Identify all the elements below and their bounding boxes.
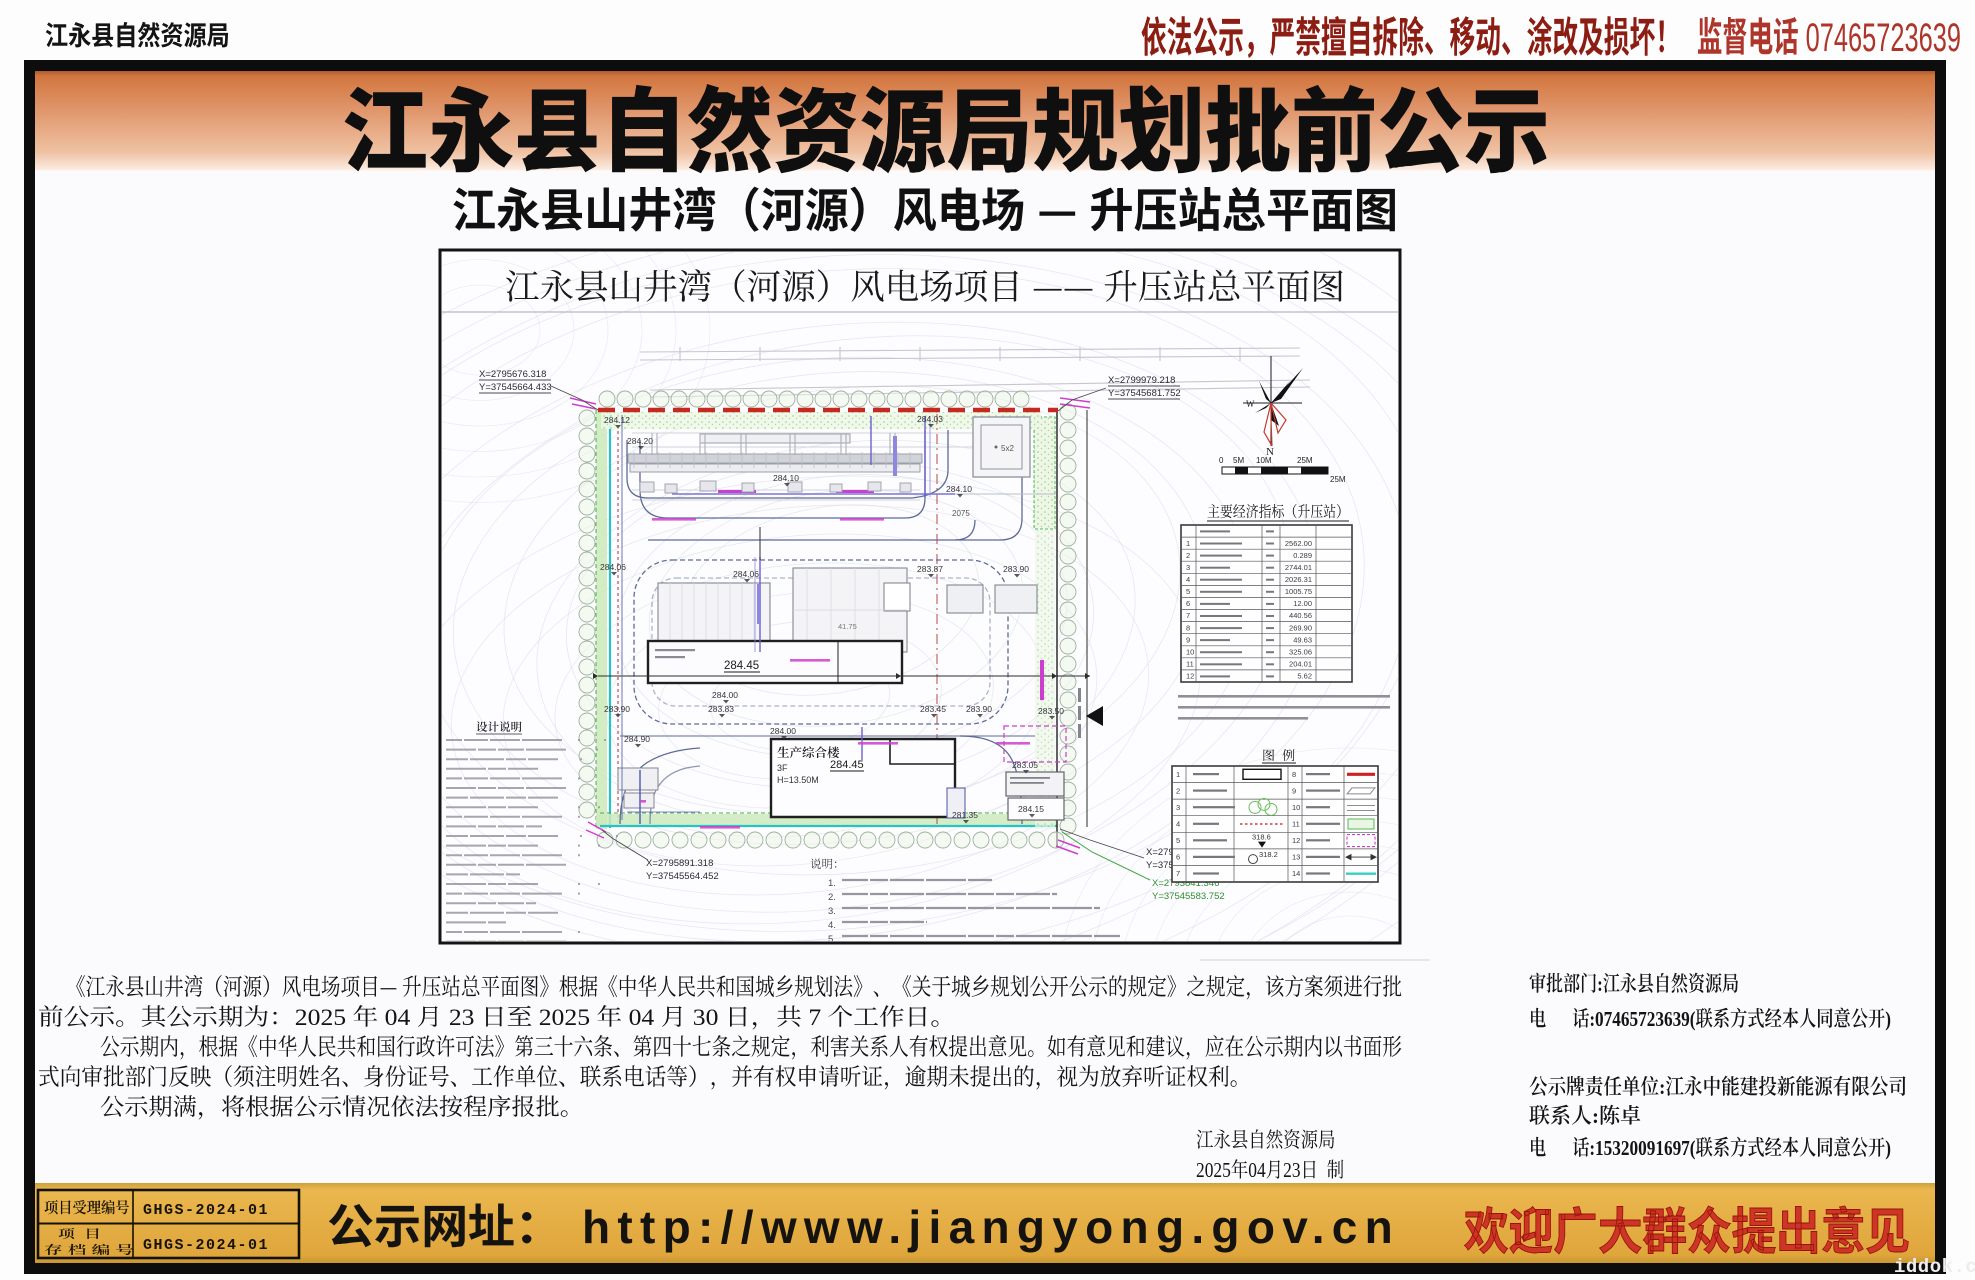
svg-text:Y=37545681.752: Y=37545681.752 — [1108, 388, 1181, 399]
svg-text:4.: 4. — [828, 920, 836, 931]
svg-text:25M: 25M — [1330, 475, 1346, 484]
svg-text::07465723639(: :07465723639( — [1589, 1008, 1695, 1031]
svg-text:Y=37545583.752: Y=37545583.752 — [1152, 891, 1225, 902]
svg-text:25M: 25M — [1297, 456, 1313, 465]
svg-text:2025: 2025 — [1196, 1160, 1231, 1183]
svg-text:3.: 3. — [828, 906, 836, 917]
svg-text:iddok.c: iddok.c — [1894, 1256, 1975, 1278]
svg-text:X=2799979.218: X=2799979.218 — [1108, 375, 1175, 386]
svg-text:2025: 2025 — [532, 1005, 596, 1031]
svg-text:12: 12 — [1292, 836, 1300, 845]
svg-text:1.: 1. — [828, 878, 836, 889]
svg-text:284.00: 284.00 — [712, 690, 738, 700]
svg-text:2744.01: 2744.01 — [1285, 563, 1312, 572]
svg-text:9: 9 — [1186, 635, 1190, 644]
svg-text:): ) — [1885, 1137, 1891, 1160]
svg-text:283.90: 283.90 — [1003, 564, 1029, 574]
svg-text:283.90: 283.90 — [966, 704, 992, 714]
svg-text:12: 12 — [1186, 672, 1194, 681]
svg-text:2.: 2. — [828, 892, 836, 903]
svg-text:283.05: 283.05 — [1012, 760, 1038, 770]
svg-text:7: 7 — [1176, 869, 1180, 878]
svg-text:8: 8 — [1186, 623, 1190, 632]
svg-text:2075: 2075 — [952, 509, 970, 518]
svg-text:440.56: 440.56 — [1289, 611, 1312, 620]
svg-text:7: 7 — [802, 1005, 828, 1031]
svg-text:281.35: 281.35 — [952, 810, 978, 820]
svg-text:4: 4 — [1176, 820, 1180, 829]
svg-text:04: 04 — [1248, 1160, 1266, 1183]
svg-text:http://www.jiangyong.gov.cn: http://www.jiangyong.gov.cn — [582, 1201, 1400, 1253]
svg-text:10: 10 — [1186, 648, 1194, 657]
svg-text:283.45: 283.45 — [920, 704, 946, 714]
svg-text:1005.75: 1005.75 — [1285, 587, 1312, 596]
svg-text:284.00: 284.00 — [770, 726, 796, 736]
svg-text::: : — [1597, 973, 1603, 996]
svg-text:284.06: 284.06 — [733, 569, 759, 579]
svg-text:8: 8 — [1292, 770, 1296, 779]
svg-text:284.45: 284.45 — [724, 660, 759, 672]
svg-text:H=13.50M: H=13.50M — [777, 775, 819, 785]
svg-text:5M: 5M — [1233, 456, 1244, 465]
svg-text:6: 6 — [1186, 599, 1190, 608]
svg-text:3F: 3F — [777, 763, 788, 773]
svg-text:284.15: 284.15 — [1018, 804, 1044, 814]
svg-text:X=2795676.318: X=2795676.318 — [479, 369, 546, 380]
svg-text:1: 1 — [1186, 539, 1190, 548]
svg-text:12.00: 12.00 — [1293, 599, 1312, 608]
svg-text::15320091697(: :15320091697( — [1589, 1137, 1695, 1160]
svg-text:04: 04 — [378, 1005, 417, 1031]
svg-text:5: 5 — [1186, 587, 1190, 596]
svg-text:284.10: 284.10 — [773, 473, 799, 483]
svg-text:0: 0 — [1219, 456, 1224, 465]
svg-text:318.2: 318.2 — [1259, 850, 1278, 859]
svg-text:Y=37545564.452: Y=37545564.452 — [646, 871, 719, 882]
svg-text:10M: 10M — [1256, 456, 1272, 465]
svg-text:2026.31: 2026.31 — [1285, 575, 1312, 584]
svg-text:2: 2 — [1176, 786, 1180, 795]
svg-text:W: W — [1246, 399, 1255, 409]
svg-text:284.10: 284.10 — [946, 484, 972, 494]
svg-text::: : — [1592, 1104, 1599, 1128]
svg-text:30: 30 — [686, 1005, 725, 1031]
svg-text:284.45: 284.45 — [830, 759, 864, 771]
svg-text:Y=37545664.433: Y=37545664.433 — [479, 382, 552, 393]
svg-text:10: 10 — [1292, 803, 1300, 812]
svg-text:5: 5 — [1176, 836, 1180, 845]
svg-text:): ) — [1885, 1008, 1891, 1031]
svg-text:X=2795891.318: X=2795891.318 — [646, 858, 713, 869]
svg-text:04: 04 — [622, 1005, 661, 1031]
svg-text:2025: 2025 — [295, 1005, 353, 1031]
svg-text:269.90: 269.90 — [1289, 623, 1312, 632]
svg-text:9: 9 — [1292, 786, 1296, 795]
svg-text:49.63: 49.63 — [1293, 635, 1312, 644]
svg-text:2562.00: 2562.00 — [1285, 539, 1312, 548]
svg-text:284.06: 284.06 — [600, 562, 626, 572]
svg-text:41.75: 41.75 — [838, 622, 857, 631]
svg-text:318.6: 318.6 — [1252, 833, 1271, 842]
svg-text:6: 6 — [1176, 853, 1180, 862]
svg-text:3: 3 — [1186, 563, 1190, 572]
svg-text:284.90: 284.90 — [624, 734, 650, 744]
svg-text:284.03: 284.03 — [917, 414, 943, 424]
svg-text:5x2: 5x2 — [1001, 444, 1014, 453]
svg-text:2: 2 — [1186, 551, 1190, 560]
svg-text:14: 14 — [1292, 869, 1300, 878]
svg-text:1: 1 — [1176, 770, 1180, 779]
svg-text:283.90: 283.90 — [604, 704, 630, 714]
svg-text:3: 3 — [1176, 803, 1180, 812]
svg-text:283.50: 283.50 — [1038, 706, 1064, 716]
svg-text:7: 7 — [1186, 611, 1190, 620]
svg-text:283.83: 283.83 — [708, 704, 734, 714]
svg-text:4: 4 — [1186, 575, 1190, 584]
svg-text:204.01: 204.01 — [1289, 660, 1312, 669]
svg-text:11: 11 — [1292, 820, 1300, 829]
svg-text:GHGS-2024-01: GHGS-2024-01 — [143, 1202, 269, 1219]
svg-text:13: 13 — [1292, 853, 1300, 862]
svg-text:07465723639: 07465723639 — [1799, 16, 1961, 60]
svg-text:23: 23 — [442, 1005, 481, 1031]
svg-text:23: 23 — [1283, 1160, 1300, 1183]
svg-text:GHGS-2024-01: GHGS-2024-01 — [143, 1237, 269, 1254]
svg-text::: : — [1659, 1076, 1665, 1100]
svg-text:0.289: 0.289 — [1293, 551, 1312, 560]
svg-text:283.87: 283.87 — [917, 564, 943, 574]
svg-text:325.06: 325.06 — [1289, 648, 1312, 657]
svg-text:5.62: 5.62 — [1297, 672, 1312, 681]
svg-text:11: 11 — [1186, 660, 1194, 669]
svg-text:284.12: 284.12 — [604, 415, 630, 425]
svg-text:284.20: 284.20 — [627, 436, 653, 446]
